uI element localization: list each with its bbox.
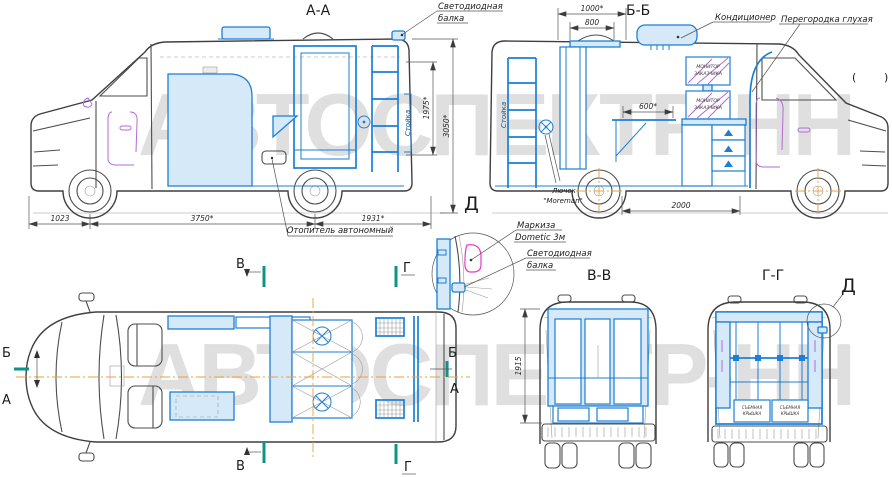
rear-bumper [712, 426, 827, 442]
wheel-centerline [795, 168, 841, 214]
roof-marker-light [558, 295, 571, 302]
dim-1023: 1023 [50, 214, 69, 223]
marker-g-bottom: Г [404, 460, 412, 475]
monitor-label-line2: ЗАКАЗЧИКА [694, 105, 722, 111]
fan-center [363, 121, 366, 124]
callout-led-bar: Светодиодная балка [401, 2, 503, 36]
monitor-label-line1: МОНИТОР [696, 98, 719, 104]
customer-monitor-2: МОНИТОР ЗАКАЗЧИКА [686, 91, 730, 119]
dimension-2000: 2000 [622, 196, 740, 215]
dim-1931: 1931* [362, 214, 385, 223]
marker-a-right: А [450, 382, 459, 397]
rear-view-v-v: В-В 1915 [514, 268, 656, 468]
cover-label-line2: КРЫШКА [743, 411, 762, 416]
leader-line [545, 135, 556, 183]
light-rays [466, 278, 492, 298]
section-marker-v-top: В [236, 257, 264, 287]
detail-view-d: Маркиза Dometic 3м Светодиодная балка [432, 221, 592, 315]
leader-line [549, 134, 560, 181]
cover-label-line2: КРЫШКА [781, 411, 800, 416]
awning-bracket [818, 327, 827, 333]
door-handle [120, 126, 131, 130]
dim-1000: 1000* [581, 4, 604, 13]
dim-3050: 3050* [442, 114, 451, 137]
dim-1915: 1915 [514, 356, 523, 375]
callout-detail-led-line2: балка [527, 261, 553, 271]
callout-hatch-line1: Лючок [551, 187, 577, 195]
monitor-label-line2: ЗАКАЗЧИКА [694, 71, 722, 77]
front-details [33, 118, 90, 166]
wardrobe-partition [270, 316, 292, 422]
shelf-column [585, 319, 610, 404]
dimension-600: 600* [623, 102, 673, 118]
rear-view-g-g: Г-Г СЪЕМНАЯ КРЫШКА СЪЕМНАЯ КРЫШКА [708, 268, 856, 467]
blue-tick-mark-right: ) [884, 71, 888, 84]
rear-door-top [414, 316, 418, 422]
callout-led-line2: балка [438, 14, 464, 24]
wheel-centerline [576, 168, 622, 214]
top-view: Б А Б А В В Г Г [2, 257, 470, 475]
central-furniture [292, 320, 352, 418]
wheel [562, 443, 577, 468]
marker-v-bottom: В [236, 459, 245, 474]
callout-led-line1: Светодиодная [438, 2, 503, 12]
section-marker-v-bottom: В [236, 442, 264, 474]
dim-800: 800 [585, 18, 600, 27]
work-table [612, 120, 676, 162]
roof-marker-light [622, 295, 635, 302]
driver-seat-top [128, 324, 162, 366]
front-details [848, 120, 886, 166]
partition-cabinet [168, 74, 252, 186]
front-wheel-bb [795, 168, 841, 214]
side-view-b-b: Б-Б 1000* 800 Кондиционер Перегородка гл… [464, 3, 888, 218]
dim-1975: 1975* [422, 96, 431, 119]
rear-bumper [542, 424, 655, 441]
wheel [545, 443, 560, 468]
led-bar-detail [452, 283, 465, 292]
counter-with-drawers [682, 119, 746, 186]
wheel [794, 443, 808, 467]
roof-hatch-frame [570, 41, 620, 47]
sliding-door-frame [294, 46, 356, 168]
rack-posts [736, 322, 802, 408]
leader-line [403, 11, 437, 34]
roof-hatch-dome [578, 35, 614, 41]
ladder-rack-bb [508, 58, 536, 188]
section-marker-g-bottom: Г [396, 444, 416, 475]
drawer-box [597, 408, 628, 421]
wheel [636, 443, 651, 468]
fan-symbol-bb [539, 120, 553, 134]
marker-a-left: А [2, 393, 11, 408]
solid-partition [750, 52, 772, 188]
bumper-hatch [718, 429, 816, 439]
wheel [810, 443, 824, 467]
cab-seat-outline [108, 112, 137, 165]
view-title-a-a: А-А [306, 3, 331, 19]
wall-cabinet-top [168, 316, 234, 329]
marker-g-top: Г [403, 261, 411, 276]
wheel [619, 443, 634, 468]
tall-cabinet [560, 47, 586, 169]
passenger-seat-top [128, 386, 162, 428]
side-view-a-a: А-А Стойка Светодиодная балка [29, 2, 503, 236]
view-title-b-b: Б-Б [626, 3, 650, 19]
monitor-bracket [703, 85, 712, 91]
blue-tick-mark-left: ( [852, 71, 856, 84]
heater-unit [262, 151, 286, 164]
customer-monitor-1: МОНИТОР ЗАКАЗЧИКА [686, 57, 730, 85]
callout-detail-led-line1: Светодиодная [527, 249, 592, 259]
section-letter-d-gg: Д [841, 275, 856, 297]
body-cut-line [455, 236, 460, 312]
vent-grille-2 [376, 400, 404, 418]
technical-drawing: А-А Стойка Светодиодная балка [0, 0, 892, 477]
door-swing-arcs [352, 322, 362, 416]
dim-600: 600* [639, 102, 657, 111]
vent-grille-1 [376, 318, 404, 336]
marker-b-right: Б [448, 346, 457, 361]
front-wheel-aa [69, 170, 111, 212]
ac-unit [637, 25, 697, 50]
marker-v-top: В [236, 257, 245, 272]
removable-cover-2: СЪЕМНАЯ КРЫШКА [772, 400, 808, 422]
rack-label-bb: Стойка [500, 102, 508, 128]
callout-heater-label: Отопитель автономный [287, 226, 394, 236]
dim-2000: 2000 [671, 201, 690, 210]
cab-seat-outline-bb [756, 98, 783, 167]
cover-label-line1: СЪЕМНАЯ [742, 405, 763, 410]
monitor-label-line1: МОНИТОР [696, 64, 719, 70]
removable-cover-1: СЪЕМНАЯ КРЫШКА [734, 400, 770, 422]
shelf-column [614, 319, 641, 404]
callout-awning-line1: Маркиза [517, 221, 555, 231]
rear-wheel-bb [576, 168, 622, 214]
roof-box [218, 27, 274, 39]
callout-hatch-line2: "Moreman" [543, 197, 583, 205]
section-letter-d-bb: Д [464, 193, 479, 215]
shelf-column [555, 319, 581, 404]
section-marker-g-top: Г [396, 261, 415, 287]
callout-awning-line2: Dometic 3м [515, 233, 566, 243]
dim-3750: 3750* [191, 214, 214, 223]
leader-line [272, 159, 288, 236]
door-handle-bb [798, 128, 810, 132]
roof-dome [303, 33, 333, 39]
side-column-left [716, 322, 730, 408]
rear-wheel-aa [294, 170, 336, 212]
view-title-g-g: Г-Г [762, 268, 784, 284]
marker-b-left: Б [2, 346, 11, 361]
cover-label-line1: СЪЕМНАЯ [780, 405, 801, 410]
rear-rack [372, 46, 398, 172]
dimensions-b-b-top: 1000* 800 [558, 4, 626, 40]
door-window [100, 58, 147, 96]
dimension-1915: 1915 [514, 309, 542, 423]
bumper-hatch [548, 427, 646, 437]
wheel [730, 443, 744, 467]
callout-partition-label: Перегородка глухая [781, 15, 873, 25]
door-window [762, 58, 836, 100]
roof-console [203, 67, 217, 73]
rack-label-aa: Стойка [404, 110, 412, 136]
wheel [714, 443, 728, 467]
cab-separation [151, 44, 152, 189]
dimensions-a-a-height: 3050* 1975* [406, 39, 458, 213]
rear-racking: СЪЕМНАЯ КРЫШКА СЪЕМНАЯ КРЫШКА [716, 312, 822, 424]
callout-ac-label: Кондиционер [715, 13, 776, 23]
view-title-v-v: В-В [587, 268, 611, 284]
drawer-box [558, 408, 589, 421]
